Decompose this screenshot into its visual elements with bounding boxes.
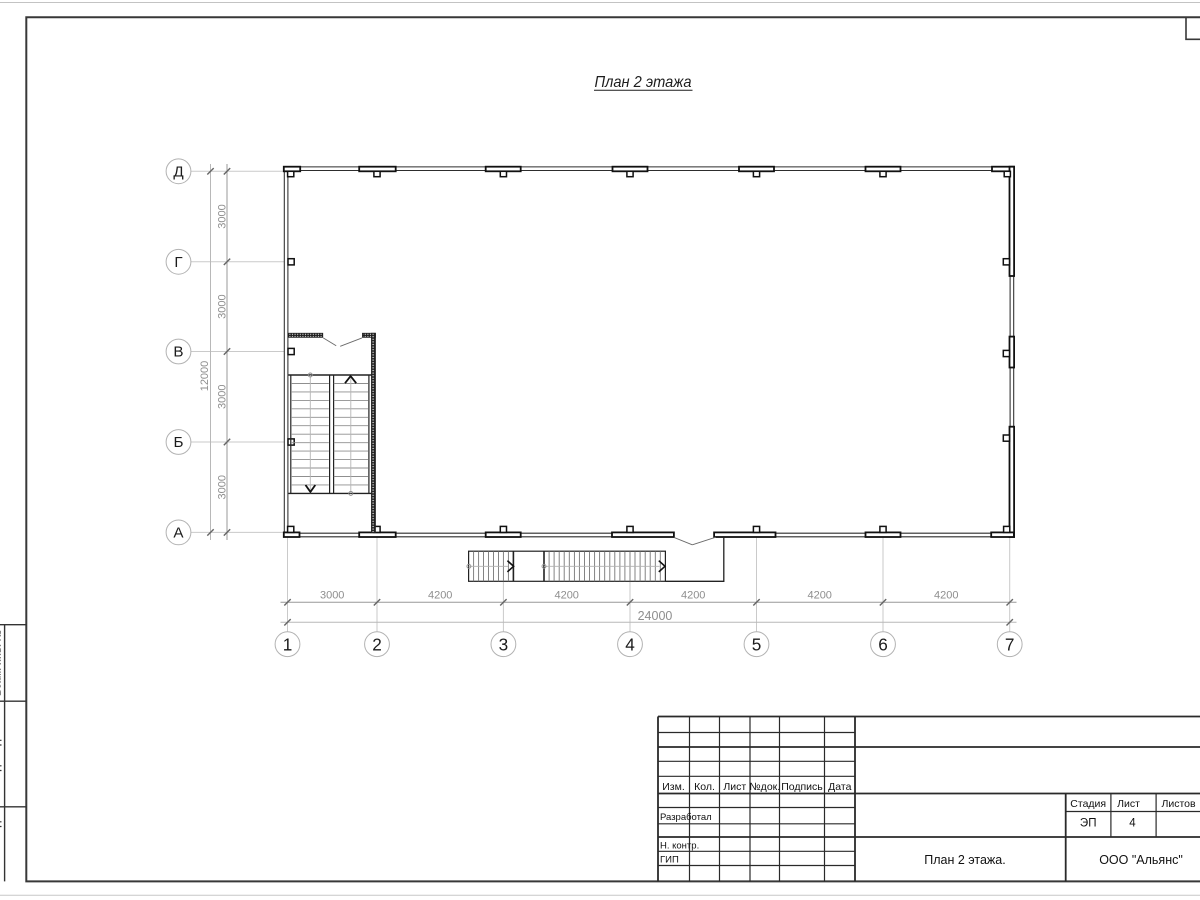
- svg-text:Д: Д: [173, 163, 183, 180]
- svg-text:4200: 4200: [934, 590, 958, 602]
- svg-text:24000: 24000: [638, 609, 673, 623]
- svg-text:1: 1: [283, 634, 293, 654]
- svg-text:Кол.: Кол.: [694, 781, 715, 793]
- svg-text:2: 2: [372, 634, 382, 654]
- svg-text:3000: 3000: [216, 384, 228, 408]
- svg-text:Дата: Дата: [828, 781, 851, 793]
- svg-text:4200: 4200: [428, 590, 452, 602]
- svg-text:Лист: Лист: [723, 781, 746, 793]
- svg-text:Стадия: Стадия: [1070, 798, 1106, 810]
- svg-text:Подп. и дата: Подп. и дата: [0, 724, 3, 784]
- svg-text:3000: 3000: [216, 294, 228, 318]
- svg-text:3000: 3000: [216, 475, 228, 499]
- svg-text:5: 5: [752, 634, 762, 654]
- svg-text:3000: 3000: [320, 590, 344, 602]
- svg-text:4: 4: [625, 634, 635, 654]
- svg-text:Н. контр.: Н. контр.: [660, 841, 699, 852]
- svg-text:Изм.: Изм.: [662, 781, 685, 793]
- svg-text:3: 3: [499, 634, 509, 654]
- svg-text:ГИП: ГИП: [660, 855, 679, 866]
- svg-text:4200: 4200: [807, 590, 831, 602]
- svg-text:ЭП: ЭП: [1080, 818, 1097, 830]
- svg-text:№док.: №док.: [749, 781, 780, 793]
- svg-text:Г: Г: [174, 254, 182, 271]
- svg-text:Подпись: Подпись: [781, 781, 823, 793]
- svg-text:Лист: Лист: [1117, 798, 1140, 810]
- svg-text:Б: Б: [174, 434, 184, 451]
- svg-text:Взам. инв. №: Взам. инв. №: [0, 630, 4, 696]
- svg-text:4: 4: [1129, 818, 1136, 830]
- svg-text:Разработал: Разработал: [660, 812, 712, 823]
- svg-text:План 2 этажа: План 2 этажа: [595, 74, 692, 91]
- svg-text:Инв. № подл.: Инв. № подл.: [0, 812, 3, 875]
- svg-text:А: А: [173, 524, 184, 541]
- svg-text:Листов: Листов: [1161, 798, 1196, 810]
- svg-text:12000: 12000: [199, 361, 211, 392]
- svg-text:4200: 4200: [554, 590, 578, 602]
- svg-text:6: 6: [878, 634, 888, 654]
- svg-text:В: В: [173, 344, 183, 361]
- svg-text:ООО "Альянс": ООО "Альянс": [1099, 853, 1183, 867]
- svg-text:7: 7: [1005, 634, 1015, 654]
- svg-text:План 2 этажа.: План 2 этажа.: [924, 853, 1005, 867]
- svg-text:3000: 3000: [216, 204, 228, 228]
- svg-text:4200: 4200: [681, 590, 705, 602]
